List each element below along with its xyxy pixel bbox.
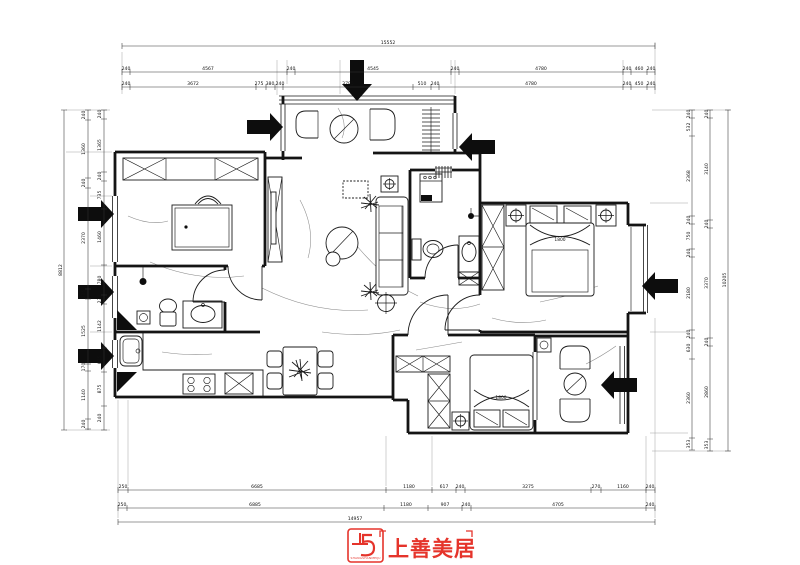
dim-label: 532 bbox=[686, 123, 692, 132]
nightstand bbox=[506, 205, 526, 226]
dining-chair bbox=[267, 373, 282, 389]
shower-head bbox=[140, 267, 147, 285]
corner-cabinet bbox=[117, 310, 150, 330]
dim-label: 240 bbox=[647, 81, 656, 87]
dim-label: 240 bbox=[276, 81, 285, 87]
dim-label: 4567 bbox=[202, 66, 214, 72]
armchair bbox=[560, 399, 590, 422]
dining-chair bbox=[318, 373, 333, 389]
dim-label: 3370 bbox=[704, 277, 710, 289]
dim-label: 1460 bbox=[97, 231, 103, 243]
dim-label: 240 bbox=[623, 81, 632, 87]
dim-label: 3795 bbox=[342, 81, 354, 87]
dim-label: 4545 bbox=[367, 66, 379, 72]
dim-label: 1180 bbox=[403, 484, 415, 490]
dim-label: 460 bbox=[635, 66, 644, 72]
dim-label: 240 bbox=[686, 216, 692, 225]
dim-label: 230 bbox=[97, 295, 103, 304]
study-desk bbox=[172, 196, 232, 250]
dim-label: 240 bbox=[462, 502, 471, 508]
shower-head bbox=[468, 208, 480, 219]
dim-label: 1180 bbox=[400, 502, 412, 508]
dining-furniture bbox=[267, 347, 333, 395]
dim-label: 250 bbox=[119, 484, 128, 490]
dim-label: 4705 bbox=[552, 502, 564, 508]
logo: SHANGSHANMEIJU 上善美居 bbox=[348, 529, 476, 562]
dim-label: 2368 bbox=[686, 170, 692, 182]
dining-table bbox=[283, 347, 317, 395]
floor-plan: 1800 bbox=[0, 0, 800, 565]
bedroom-door bbox=[408, 295, 448, 335]
dim-label: 240 bbox=[81, 420, 87, 429]
armchair bbox=[560, 346, 590, 369]
toilet bbox=[160, 299, 177, 326]
wardrobe bbox=[482, 205, 504, 290]
dim-label: 240 bbox=[81, 111, 87, 120]
armchair bbox=[296, 111, 318, 138]
study-door bbox=[228, 266, 262, 300]
right-arrow bbox=[78, 200, 114, 228]
armchair bbox=[370, 109, 395, 140]
dim-label: 6685 bbox=[251, 484, 263, 490]
sofa bbox=[376, 197, 408, 295]
left-arrow bbox=[459, 133, 495, 161]
dim-label: 15552 bbox=[381, 40, 396, 46]
dim-label: 10205 bbox=[722, 273, 728, 288]
tv bbox=[271, 192, 276, 244]
dim-label: 1140 bbox=[81, 389, 87, 401]
nightstand bbox=[596, 205, 616, 226]
dim-label: 3275 bbox=[522, 484, 534, 490]
dim-label: 240 bbox=[451, 66, 460, 72]
cabinet bbox=[225, 373, 253, 394]
floor-plan-page: 1800 bbox=[0, 0, 800, 565]
toilet bbox=[412, 239, 443, 260]
dim-label: 240 bbox=[704, 338, 710, 347]
dim-label: 240 bbox=[646, 502, 655, 508]
dim-label: 1365 bbox=[97, 139, 103, 151]
dim-label: 240 bbox=[623, 66, 632, 72]
dim-label: 235 bbox=[81, 290, 87, 299]
dim-label: 14957 bbox=[348, 516, 363, 522]
main-bathroom-furniture bbox=[412, 174, 480, 285]
dim-label: 250 bbox=[118, 502, 127, 508]
dim-label: 8812 bbox=[58, 264, 64, 276]
dim-label: 3672 bbox=[187, 81, 199, 87]
master-bedroom-door bbox=[445, 295, 480, 330]
left-arrow bbox=[601, 371, 637, 399]
desk-chair bbox=[195, 196, 221, 204]
dim-label: 780 bbox=[97, 276, 103, 285]
washbasin bbox=[183, 301, 222, 328]
living-room-furniture bbox=[326, 176, 408, 314]
dim-label: 240 bbox=[122, 81, 131, 87]
dim-label: 240 bbox=[81, 179, 87, 188]
sink bbox=[120, 336, 142, 366]
brand-text: 上善美居 bbox=[388, 537, 476, 561]
radiator bbox=[422, 107, 440, 152]
dim-label: 380 bbox=[266, 81, 275, 87]
master-bedroom-furniture: 1800 bbox=[482, 205, 631, 311]
dim-label: 630 bbox=[686, 344, 692, 353]
nightstand bbox=[452, 412, 469, 430]
dim-label: 617 bbox=[440, 484, 449, 490]
logo-mark-icon bbox=[352, 533, 374, 555]
ceiling-lamp bbox=[381, 176, 398, 192]
dim-label: 240 bbox=[686, 249, 692, 258]
corner-cabinet bbox=[117, 372, 137, 392]
tv-cabinet bbox=[268, 177, 282, 262]
kitchen-furniture bbox=[117, 332, 263, 397]
dim-label: 2180 bbox=[686, 287, 692, 299]
dim-label: 750 bbox=[686, 232, 692, 241]
dim-label: 240 bbox=[704, 220, 710, 229]
dim-label: 170 bbox=[81, 363, 87, 372]
dim-label: 450 bbox=[635, 81, 644, 87]
dim-label: 240 bbox=[287, 66, 296, 72]
dim-label: 2370 bbox=[81, 232, 87, 244]
dim-label: 353 bbox=[686, 440, 692, 449]
dim-label: 240 bbox=[456, 484, 465, 490]
dim-label: 240 bbox=[647, 66, 656, 72]
dim-label: 635 bbox=[97, 356, 103, 365]
dim-label: 240 bbox=[686, 330, 692, 339]
dim-label: 1525 bbox=[81, 325, 87, 337]
wardrobe bbox=[396, 356, 450, 428]
dim-label: 240 bbox=[431, 81, 440, 87]
dim-label: 240 bbox=[122, 66, 131, 72]
bathroom-door bbox=[193, 270, 225, 302]
coffee-table bbox=[326, 227, 358, 266]
stove bbox=[183, 374, 215, 394]
rug bbox=[343, 181, 368, 198]
dining-chair bbox=[267, 351, 282, 367]
dim-label: 1142 bbox=[97, 320, 103, 332]
north-balcony-furniture bbox=[296, 107, 440, 152]
water-heater bbox=[537, 338, 551, 352]
dim-label: 275 bbox=[255, 81, 264, 87]
dim-label: 4780 bbox=[525, 81, 537, 87]
dim-label: 240 bbox=[686, 110, 692, 119]
dim-label: 240 bbox=[97, 414, 103, 423]
dim-label: 240 bbox=[97, 110, 103, 119]
dim-label: 907 bbox=[441, 502, 450, 508]
dim-label: 6885 bbox=[249, 502, 261, 508]
dim-label: 510 bbox=[418, 81, 427, 87]
dim-label: 240 bbox=[646, 484, 655, 490]
dim-label: 1360 bbox=[81, 143, 87, 155]
second-bedroom-furniture: 1800 bbox=[396, 295, 533, 430]
dim-label: 735 bbox=[97, 191, 103, 200]
dim-label: 270 bbox=[592, 484, 601, 490]
dim-label: 2360 bbox=[686, 392, 692, 404]
right-arrow bbox=[247, 113, 283, 141]
dim-label: 2860 bbox=[704, 386, 710, 398]
dim-label: 353 bbox=[704, 441, 710, 450]
logo-subtext: SHANGSHANMEIJU bbox=[351, 556, 381, 560]
dim-label: 1160 bbox=[617, 484, 629, 490]
washing-machine bbox=[420, 174, 442, 202]
dim-label: 240 bbox=[704, 110, 710, 119]
master-bed: 1800 bbox=[526, 206, 594, 296]
second-bathroom-furniture bbox=[117, 267, 225, 330]
bed-size-label: 1800 bbox=[495, 395, 506, 401]
dim-label: 4780 bbox=[535, 66, 547, 72]
bed-size-label: 1800 bbox=[554, 237, 565, 243]
dining-chair bbox=[318, 351, 333, 367]
south-balcony-furniture bbox=[537, 338, 590, 422]
dim-label: 3140 bbox=[704, 163, 710, 175]
dim-label: 240 bbox=[97, 172, 103, 181]
dim-label: 875 bbox=[97, 385, 103, 394]
study-wardrobe bbox=[123, 158, 258, 180]
second-bed: 1800 bbox=[470, 355, 533, 430]
